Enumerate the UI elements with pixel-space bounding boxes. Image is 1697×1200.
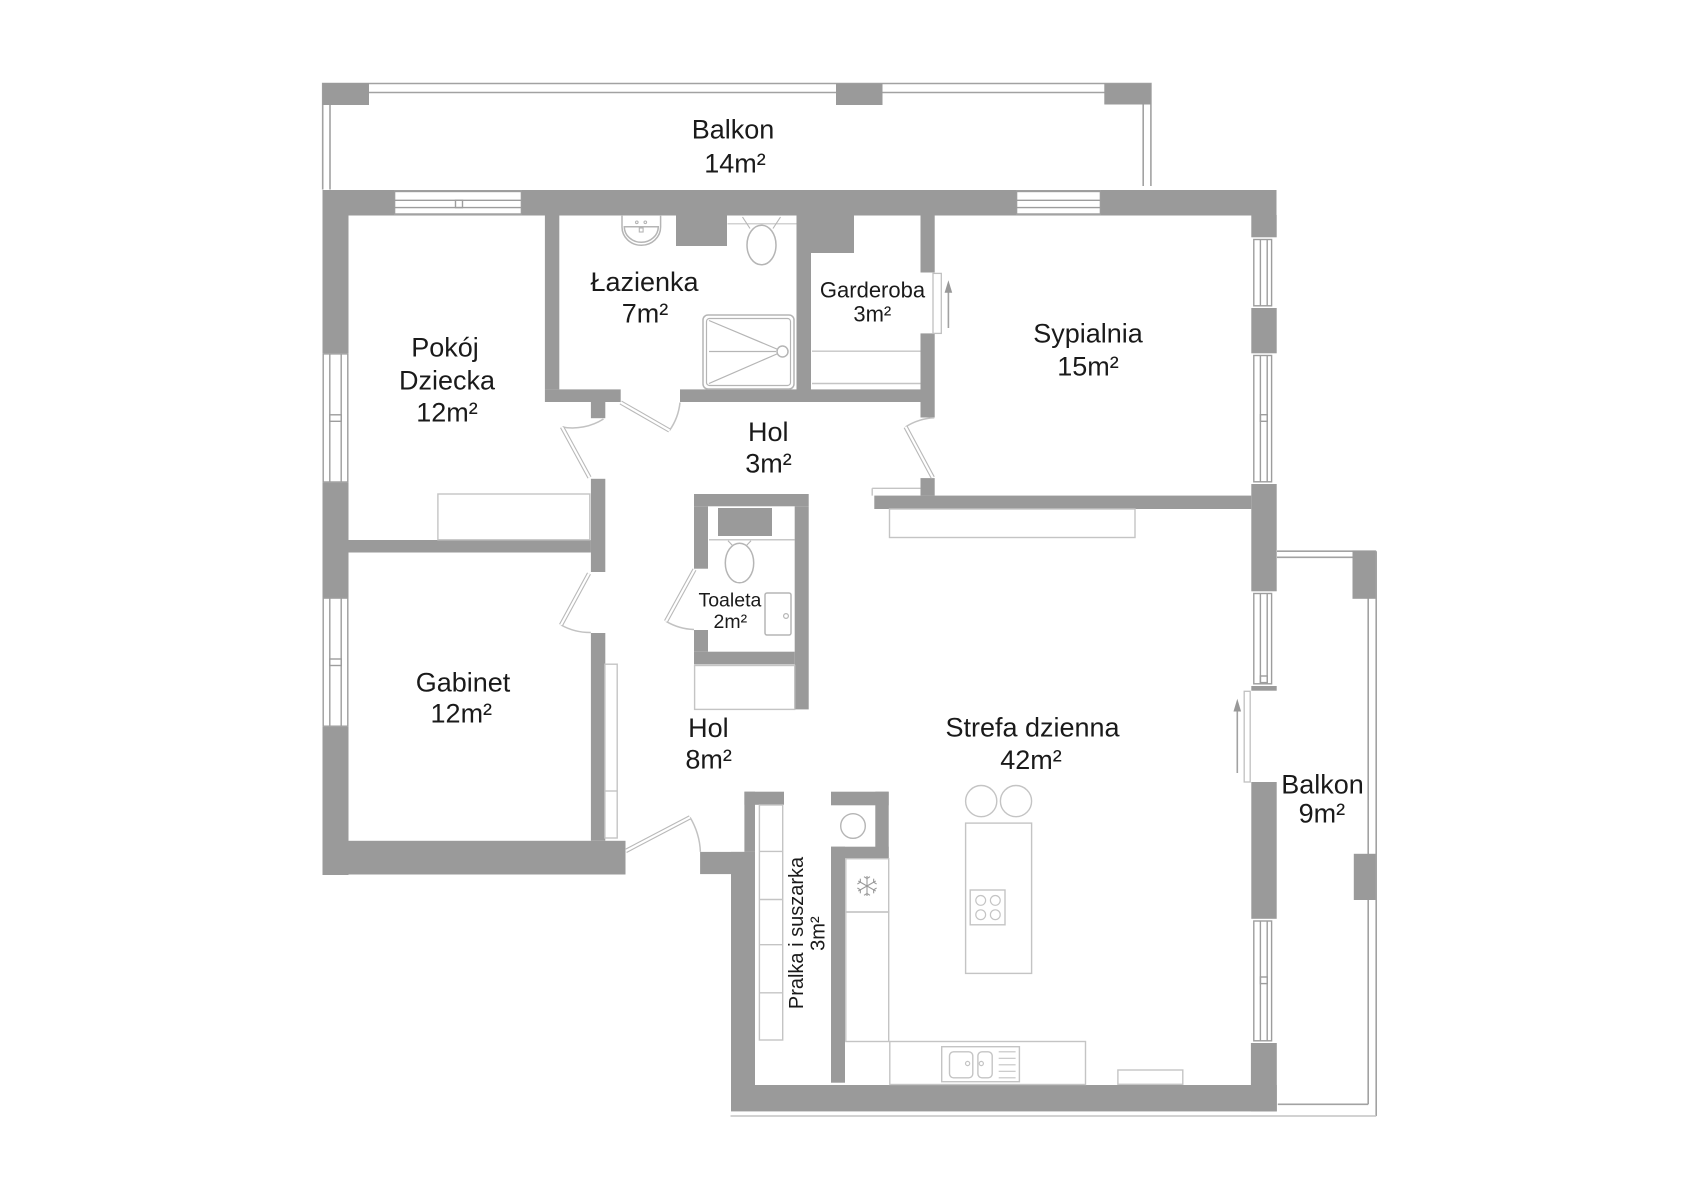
svg-text:12m²: 12m²: [416, 397, 478, 427]
svg-text:Hol: Hol: [748, 417, 789, 447]
svg-text:42m²: 42m²: [1000, 745, 1062, 775]
svg-text:9m²: 9m²: [1299, 799, 1346, 829]
svg-text:Balkon: Balkon: [692, 115, 775, 145]
svg-text:Łazienka: Łazienka: [590, 267, 699, 297]
svg-text:Dziecka: Dziecka: [399, 365, 496, 395]
svg-text:Garderoba: Garderoba: [820, 278, 926, 303]
svg-text:8m²: 8m²: [685, 745, 732, 775]
svg-text:Toaleta: Toaleta: [698, 590, 761, 612]
svg-text:Gabinet: Gabinet: [416, 667, 511, 697]
svg-text:3m²: 3m²: [853, 302, 891, 327]
svg-text:Balkon: Balkon: [1281, 770, 1364, 800]
svg-text:Pokój: Pokój: [411, 332, 479, 362]
svg-text:12m²: 12m²: [431, 699, 493, 729]
svg-text:Sypialnia: Sypialnia: [1033, 318, 1144, 348]
svg-text:Strefa dzienna: Strefa dzienna: [945, 713, 1120, 743]
svg-text:7m²: 7m²: [622, 299, 669, 329]
svg-text:Pralka i suszarka: Pralka i suszarka: [786, 856, 808, 1009]
svg-text:2m²: 2m²: [714, 611, 748, 633]
svg-text:15m²: 15m²: [1057, 351, 1119, 381]
svg-text:3m²: 3m²: [808, 916, 830, 951]
svg-text:14m²: 14m²: [704, 149, 766, 179]
svg-text:3m²: 3m²: [745, 449, 792, 479]
svg-text:Hol: Hol: [688, 713, 729, 743]
